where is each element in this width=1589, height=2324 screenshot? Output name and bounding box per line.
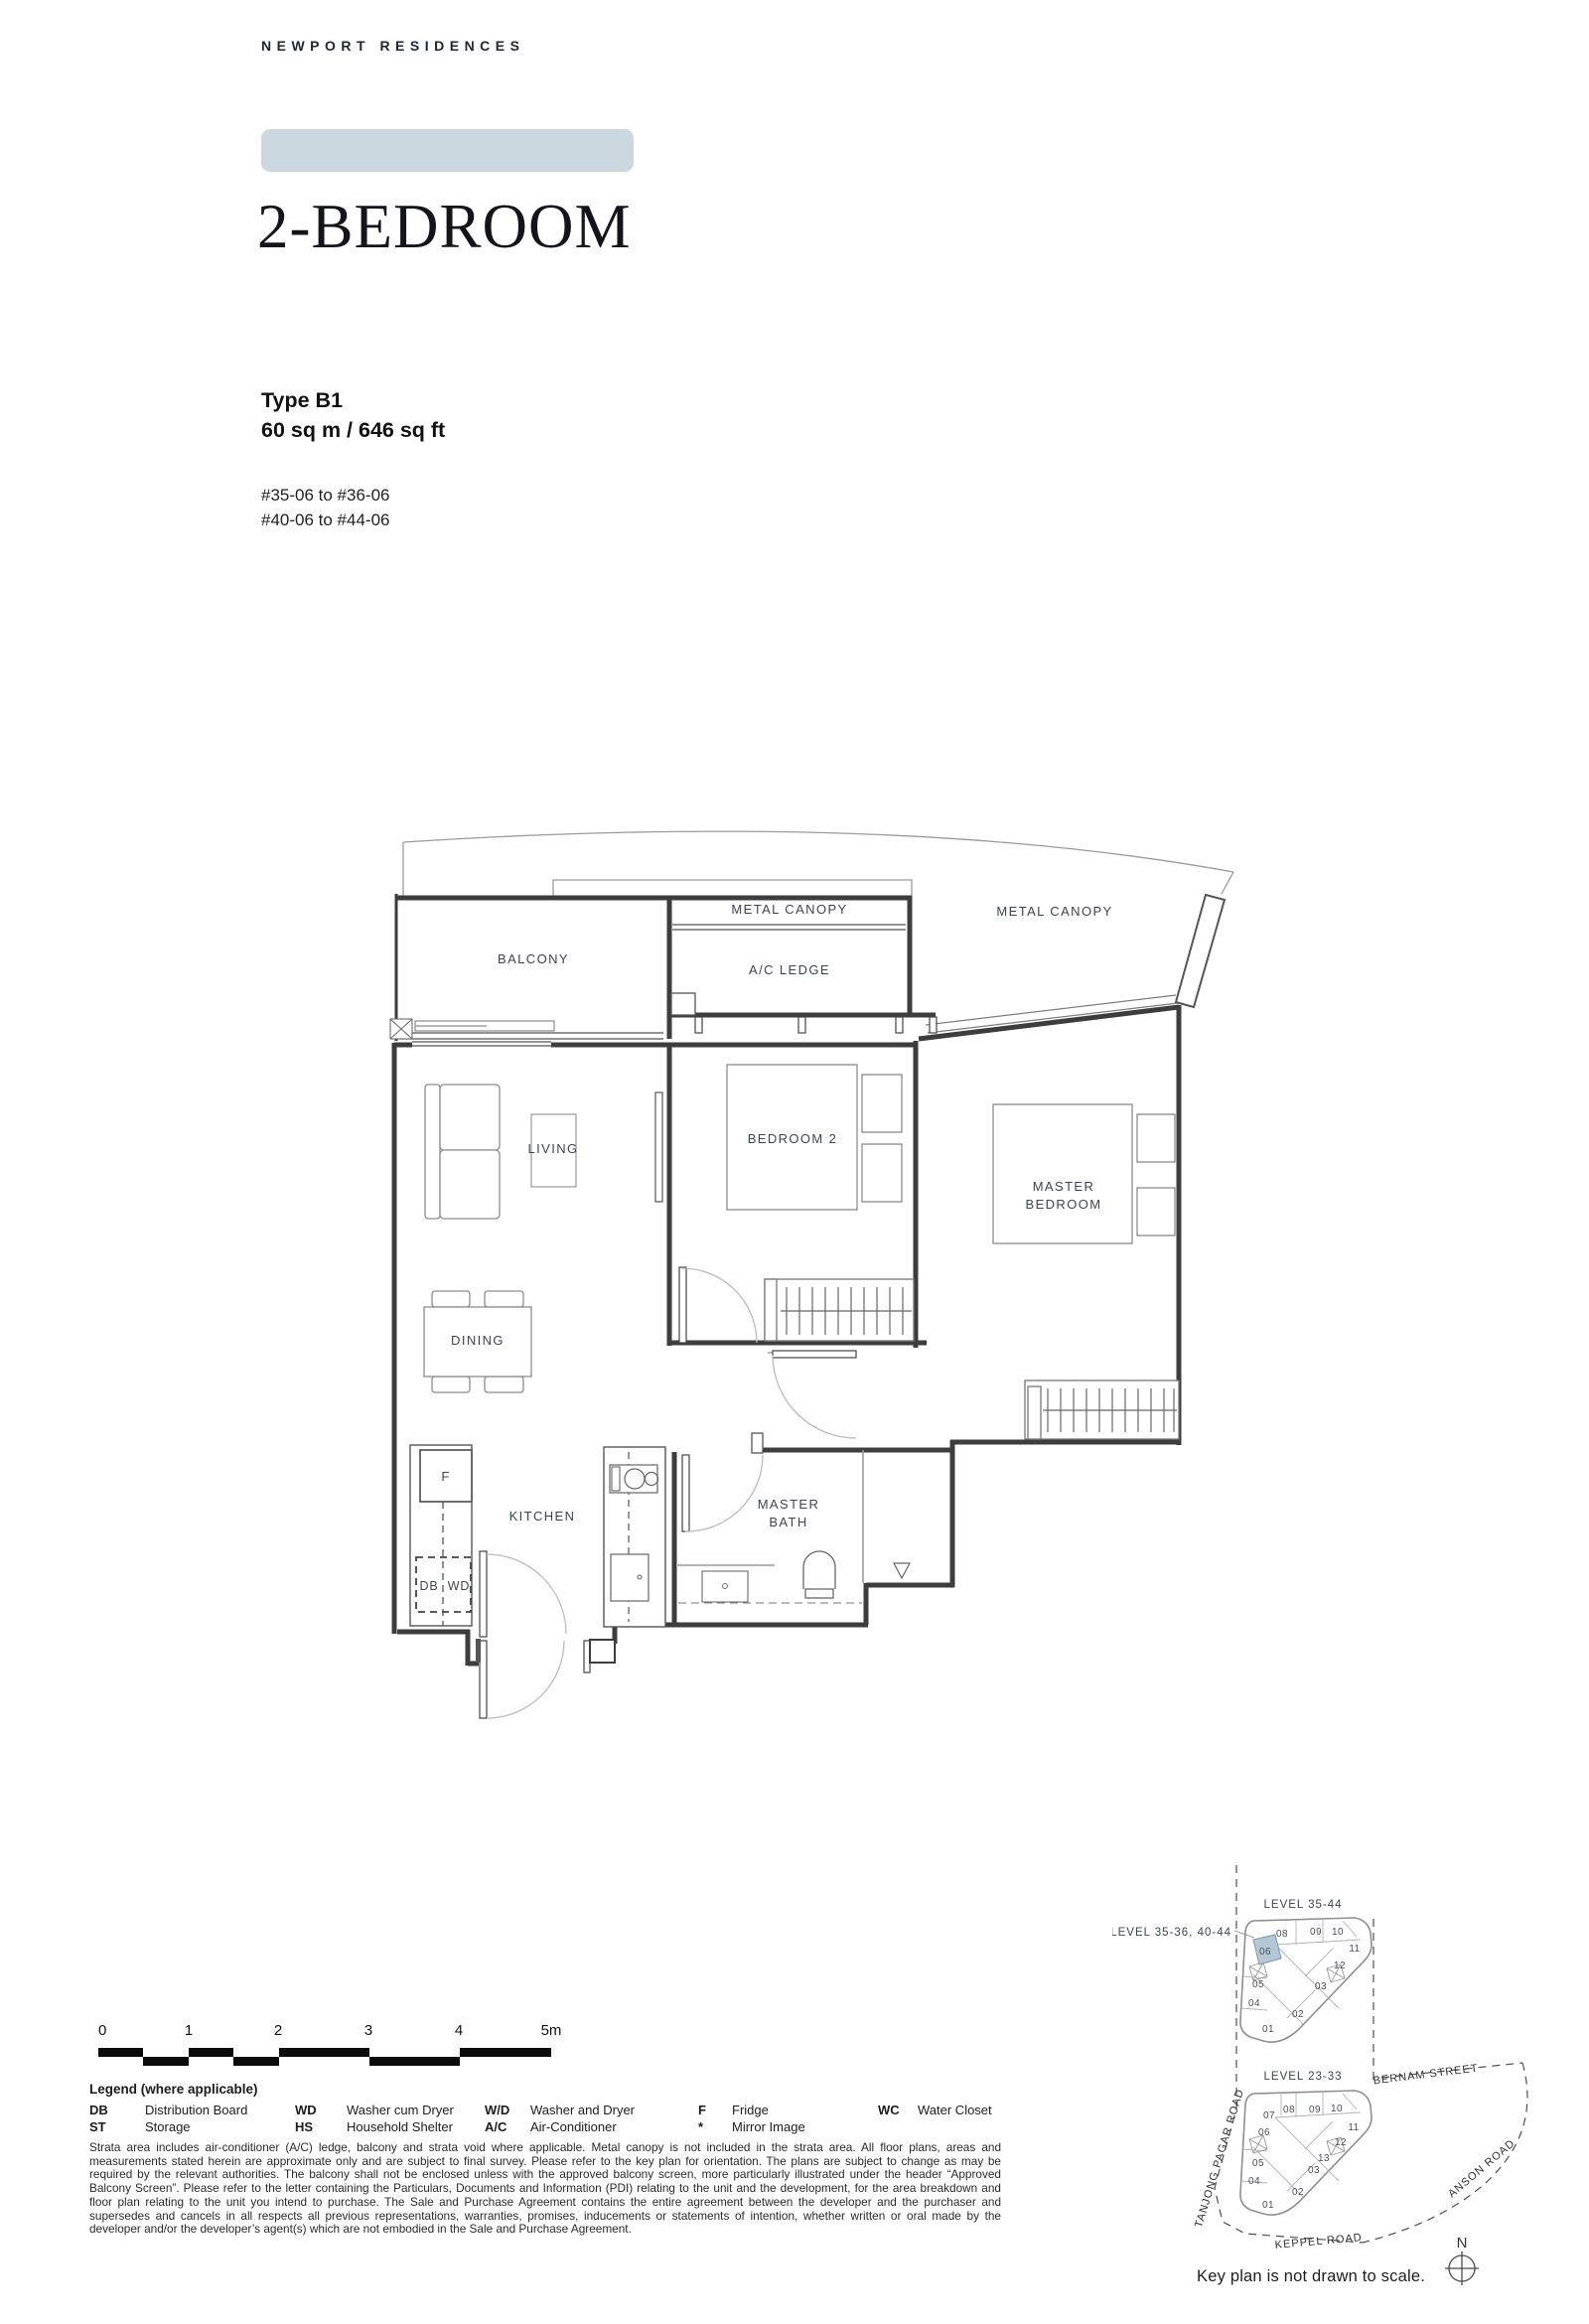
scale-seg	[189, 2048, 233, 2057]
balcony-door-opening	[412, 1038, 551, 1050]
master-bedroom-label-1: MASTER	[1033, 1179, 1095, 1194]
kp-bot-unit: 12	[1335, 2137, 1347, 2148]
ac-ledge-notch	[671, 993, 695, 1015]
kp-bot-unit: 05	[1252, 2158, 1264, 2169]
scale-tick-2: 2	[274, 2022, 282, 2039]
legend-term: Washer cum Dryer	[347, 2103, 454, 2117]
keyplan-building-top: 08 09 10 11 12 06 05 03 04 02 01	[1240, 1918, 1372, 2042]
living-sofa	[425, 1085, 500, 1219]
ac-ledge-label: A/C LEDGE	[749, 962, 830, 977]
legend-term: Storage	[145, 2119, 191, 2134]
metal-canopy-right-label: METAL CANOPY	[996, 904, 1112, 919]
scale-tick-5: 5m	[541, 2022, 562, 2039]
legend-term: Air-Conditioner	[530, 2119, 617, 2134]
kp-bot-unit: 04	[1248, 2176, 1260, 2187]
bedroom2-label: BEDROOM 2	[748, 1131, 838, 1146]
scale-seg	[279, 2048, 369, 2057]
keyplan-building-bottom: 07 08 09 10 11 12 13 06 05 03 04 02 01	[1240, 2091, 1372, 2215]
legend-heading: Legend (where applicable)	[89, 2082, 1033, 2097]
level-callout-label: LEVEL 35-36, 40-44	[1112, 1927, 1231, 1939]
kitchen-label: KITCHEN	[509, 1509, 576, 1524]
kp-bot-unit: 01	[1262, 2200, 1274, 2211]
facade-mullions	[695, 1017, 937, 1033]
scale-seg	[369, 2057, 460, 2066]
unit-range-1: #35-06 to #36-06	[261, 483, 390, 508]
master-bath-label-1: MASTER	[758, 1497, 820, 1512]
master-bath-label-2: BATH	[769, 1515, 807, 1529]
kp-bot-unit: 03	[1308, 2165, 1320, 2176]
kp-top-unit: 09	[1310, 1927, 1322, 1938]
tanjong-pagar-road-label: TANJONG PAGAR ROAD	[1193, 2088, 1246, 2229]
legend-abbr: W/D	[485, 2103, 509, 2117]
unit-area: 60 sq m / 646 sq ft	[261, 415, 445, 445]
kp-bot-unit: 13	[1318, 2153, 1330, 2164]
kp-top-unit: 12	[1334, 1961, 1346, 1971]
kp-top-unit: 04	[1248, 1998, 1260, 2009]
master-wardrobe	[1025, 1380, 1179, 1439]
floorplan-brochure-page: NEWPORT RESIDENCES 2-BEDROOM Type B1 60 …	[0, 0, 1589, 2324]
kp-top-unit: 11	[1349, 1944, 1360, 1955]
key-plan: 08 09 10 11 12 06 05 03 04 02 01	[1112, 1857, 1579, 2314]
living-label: LIVING	[527, 1141, 578, 1156]
kp-bot-unit: 08	[1283, 2105, 1295, 2115]
scale-tick-1: 1	[185, 2022, 193, 2039]
legend-term: Distribution Board	[145, 2103, 247, 2117]
balcony-planter	[390, 1019, 412, 1039]
floorplan-drawing: BALCONY METAL CANOPY A/C LEDGE METAL CAN…	[377, 809, 1261, 1733]
scale-seg	[143, 2057, 189, 2066]
room-labels: BALCONY METAL CANOPY A/C LEDGE METAL CAN…	[420, 902, 1113, 1593]
kp-top-unit: 10	[1332, 1927, 1344, 1938]
scale-tick-3: 3	[364, 2022, 372, 2039]
db-label: DB	[420, 1579, 439, 1593]
legend-abbr: WD	[295, 2103, 317, 2117]
master-bedroom-label-2: BEDROOM	[1026, 1197, 1102, 1212]
brand-header: NEWPORT RESIDENCES	[261, 38, 524, 54]
unit-type: Type B1	[261, 385, 445, 415]
kp-bot-unit: 11	[1348, 2122, 1359, 2133]
legend-abbr: A/C	[485, 2119, 506, 2134]
scale-seg	[98, 2048, 143, 2057]
keppel-road-label: KEPPEL ROAD	[1274, 2232, 1363, 2251]
unit-range-2: #40-06 to #44-06	[261, 508, 390, 532]
compass-icon	[1445, 2251, 1479, 2285]
keyplan-note: Key plan is not drawn to scale.	[1197, 2267, 1425, 2285]
kp-top-unit: 08	[1276, 1929, 1288, 1940]
kp-bot-unit: 10	[1331, 2104, 1343, 2114]
page-title: 2-BEDROOM	[257, 191, 632, 263]
metal-canopy-strip	[672, 925, 906, 930]
kp-top-unit: 01	[1262, 2024, 1274, 2035]
wd-label: WD	[448, 1579, 470, 1593]
legend-abbr: ST	[89, 2119, 106, 2134]
legend-abbr: F	[698, 2103, 706, 2117]
legend-abbr: DB	[89, 2103, 108, 2117]
bernam-street-label: BERNAM STREET	[1372, 2063, 1479, 2088]
kp-top-unit: 05	[1252, 1979, 1264, 1990]
unit-type-block: Type B1 60 sq m / 646 sq ft	[261, 385, 445, 445]
level-top-label: LEVEL 35-44	[1264, 1899, 1343, 1911]
kp-bot-unit: 09	[1309, 2105, 1321, 2115]
scale-tick-4: 4	[455, 2022, 463, 2039]
balcony-label: BALCONY	[498, 951, 569, 966]
legend-abbr: WC	[878, 2103, 900, 2117]
legend-term: Water Closet	[918, 2103, 992, 2117]
canopy-outline	[403, 831, 1233, 896]
dining-label: DINING	[451, 1333, 505, 1348]
legend-grid: DB Distribution Board ST Storage WD Wash…	[89, 2103, 1033, 2142]
legend-term: Washer and Dryer	[530, 2103, 635, 2117]
legend: Legend (where applicable) DB Distributio…	[89, 2082, 1033, 2142]
site-boundary	[1215, 1865, 1527, 2243]
fridge-label: F	[441, 1469, 450, 1484]
section-banner	[261, 129, 634, 172]
compass-north-label: N	[1457, 2235, 1468, 2251]
kp-top-unit: 03	[1315, 1981, 1327, 1992]
legend-term: Mirror Image	[732, 2119, 805, 2134]
kp-top-unit: 06	[1259, 1947, 1271, 1958]
metal-canopy-mid-label: METAL CANOPY	[731, 902, 847, 917]
kp-bot-unit: 06	[1258, 2127, 1270, 2138]
scale-seg	[460, 2048, 551, 2057]
scale-tick-0: 0	[98, 2022, 106, 2039]
legend-abbr: *	[698, 2119, 703, 2134]
balcony-shelf	[415, 1021, 554, 1031]
kitchen-island	[604, 1447, 665, 1627]
unit-ranges: #35-06 to #36-06 #40-06 to #44-06	[261, 483, 390, 532]
sliding-panel	[655, 1092, 662, 1202]
disclaimer-text: Strata area includes air-conditioner (A/…	[89, 2141, 1001, 2237]
kp-top-unit: 02	[1292, 2009, 1304, 2020]
kp-bot-unit: 07	[1263, 2110, 1275, 2121]
anson-road-label: ANSON ROAD	[1446, 2137, 1517, 2200]
legend-abbr: HS	[295, 2119, 313, 2134]
scale-seg	[233, 2057, 279, 2066]
scale-bar: 0 1 2 3 4 5m	[98, 2022, 551, 2068]
kp-bot-unit: 02	[1292, 2187, 1304, 2198]
master-bedroom-furniture	[993, 1104, 1175, 1243]
legend-term: Household Shelter	[347, 2119, 453, 2134]
level-bottom-label: LEVEL 23-33	[1264, 2071, 1343, 2083]
canopy-fin	[1176, 895, 1225, 1007]
legend-term: Fridge	[732, 2103, 769, 2117]
